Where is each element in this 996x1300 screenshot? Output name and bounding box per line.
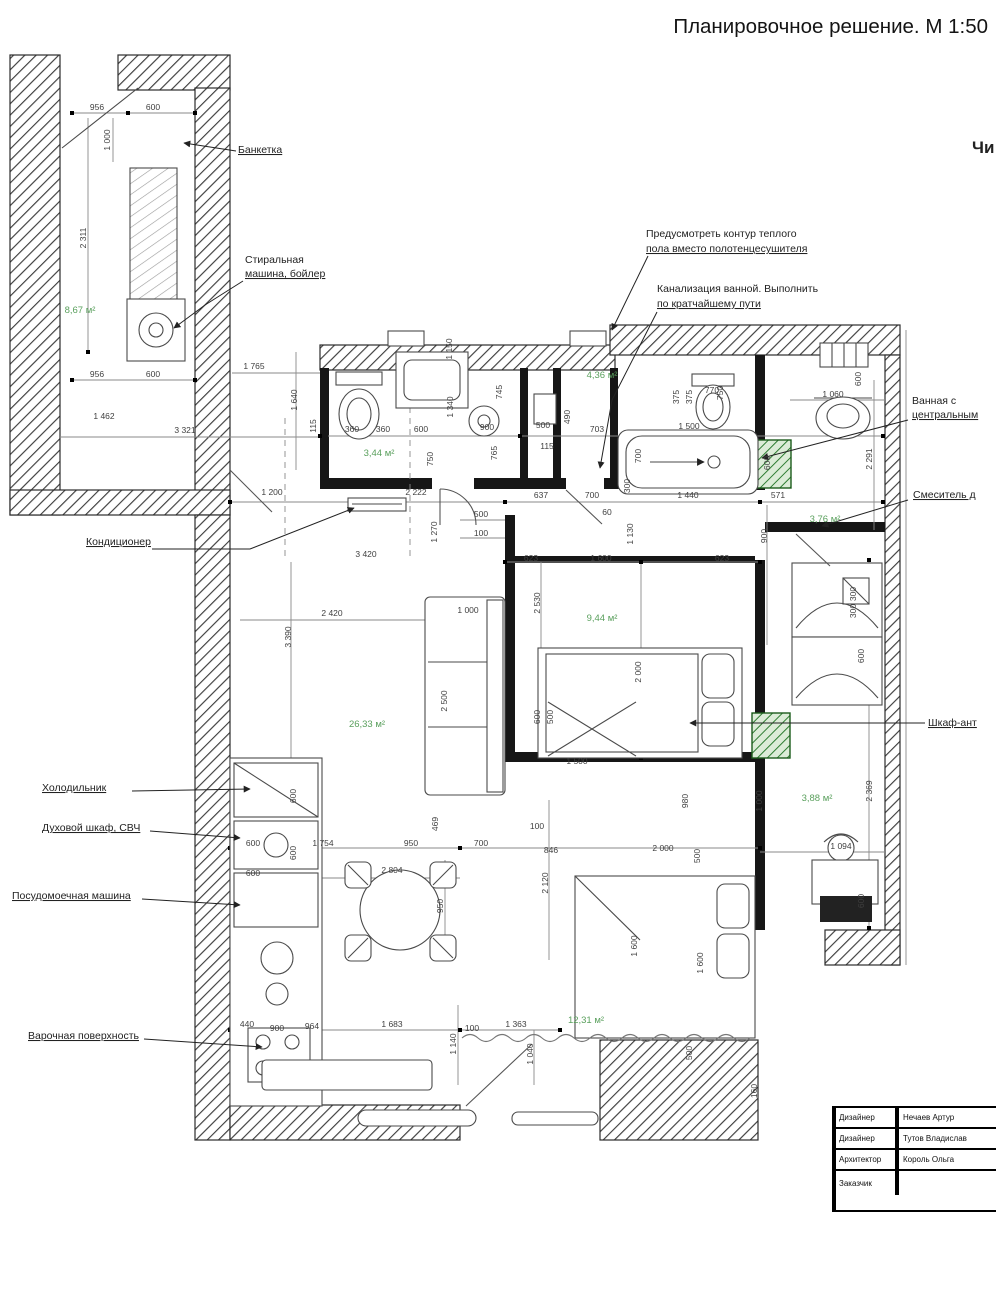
dimension-label: 700: [585, 490, 599, 500]
dimension-label: 60: [602, 507, 612, 517]
dimension-label: 2 222: [405, 487, 427, 497]
dimension-label: 300: [622, 479, 632, 493]
room-area-label: 3,88 м²: [802, 793, 833, 804]
dimension-label: 100: [465, 1023, 479, 1033]
radiator: [820, 343, 868, 367]
dimension-label: 1 150: [444, 338, 454, 360]
dimension-label: 500: [692, 849, 702, 863]
person-name: Тутов Владислав: [899, 1134, 996, 1143]
dimension-label: 2 530: [532, 592, 542, 614]
wall-left-outer: [10, 55, 60, 515]
dimension-label: 600: [246, 868, 260, 878]
dimension-label: 1 040: [525, 1043, 535, 1065]
room-area-label: 4,36 м²: [587, 370, 618, 381]
room-area-label: 3,44 м²: [364, 448, 395, 459]
dimension-label: 1 600: [695, 952, 705, 974]
dimension-label: 600: [288, 789, 298, 803]
entry-door-swing: [62, 88, 138, 148]
callout-bath-central-line1: Ванная с: [912, 395, 956, 407]
floor-plan-drawing: Планировочное решение. М 1:50 Чи: [0, 0, 996, 1300]
duct-shaft: [755, 440, 791, 488]
role-label: Заказчик: [836, 1171, 899, 1195]
dimension-label: 2 804: [381, 865, 403, 875]
clipped-edge-text: Чи: [972, 138, 994, 157]
dimension-label: 2 120: [540, 872, 550, 894]
dimension-label: 1 000: [102, 129, 112, 151]
dimension-label: 115: [308, 419, 318, 433]
title-block: Дизайнер Нечаев Артур Дизайнер Тутов Вла…: [832, 1106, 996, 1212]
room-area-label: 3,76 м²: [810, 514, 841, 525]
role-label: Дизайнер: [836, 1108, 899, 1127]
callout-washer-line1: Стиральная: [245, 254, 304, 266]
dimension-label: 1 363: [505, 1019, 527, 1029]
dimension-label: 1 683: [381, 1019, 403, 1029]
dimension-label: 115: [540, 441, 554, 451]
dimension-label: 500: [536, 420, 550, 430]
callout-bench: Банкетка: [238, 144, 282, 156]
wall-left-lower: [195, 515, 230, 1140]
dimension-label: 2 000: [652, 843, 674, 853]
dimension-label: 956: [90, 102, 104, 112]
dimension-label: 1 340: [445, 396, 455, 418]
dimension-label: 571: [771, 490, 785, 500]
dimension-label: 600: [288, 846, 298, 860]
room-area-label: 8,67 м²: [65, 305, 96, 316]
dimension-label: 375: [671, 390, 681, 404]
dimension-label: 500: [684, 1046, 694, 1060]
dimension-label: 2 311: [78, 227, 88, 248]
washing-machine: [127, 299, 185, 361]
callout-wardrobe: Шкаф-ант: [928, 717, 977, 729]
dimension-label: 700: [633, 449, 643, 463]
dimension-label: 900: [480, 422, 494, 432]
title-block-row: Заказчик: [836, 1171, 996, 1195]
balcony-cabinet: [262, 1060, 432, 1090]
page-title: Планировочное решение. М 1:50: [673, 15, 988, 38]
dimension-label: 2 369: [864, 780, 874, 802]
dimension-label: 950: [404, 838, 418, 848]
dimension-label: 750: [425, 452, 435, 466]
wall-top-corridor: [118, 55, 230, 90]
room-area-label: 26,33 м²: [349, 719, 385, 730]
dimension-label: 1 060: [822, 389, 844, 399]
wall-bottom-right-block: [600, 1040, 758, 1140]
dimension-label: 846: [544, 845, 558, 855]
dimension-label: 1 462: [93, 411, 115, 421]
dimension-label: 900: [270, 1023, 284, 1033]
dimension-label: 3 321: [174, 425, 196, 435]
dimension-label: 360: [376, 424, 390, 434]
title-block-row: Дизайнер Тутов Владислав: [836, 1129, 996, 1150]
callout-dishwasher: Посудомоечная машина: [12, 890, 131, 902]
callout-bath-central-line2: центральным: [912, 409, 978, 421]
dimension-label: 1 754: [312, 838, 334, 848]
dimension-label: 2 291: [864, 448, 874, 470]
dimension-label: 1 640: [289, 389, 299, 411]
dimension-label: 703: [590, 424, 604, 434]
callout-washer-line2: машина, бойлер: [245, 268, 326, 280]
dimension-label: 1 094: [830, 841, 852, 851]
dimension-label: 1 140: [448, 1033, 458, 1055]
wall-right-bottom: [825, 930, 900, 965]
dimension-label: 700: [474, 838, 488, 848]
dimension-label: 1 270: [429, 521, 439, 543]
room-area-label: 9,44 м²: [587, 613, 618, 624]
note-drain-line2: по кратчайшему пути: [657, 298, 761, 310]
title-block-row: Архитектор Король Ольга: [836, 1150, 996, 1171]
dimension-label: 600: [856, 649, 866, 663]
callout-oven: Духовой шкаф, СВЧ: [42, 822, 140, 834]
dimension-label: 100: [530, 821, 544, 831]
dimension-label: 964: [305, 1021, 319, 1031]
dimension-label: 360: [345, 424, 359, 434]
dimension-label: 1 200: [261, 487, 283, 497]
dimension-label: 745: [494, 385, 504, 399]
title-block-row: Дизайнер Нечаев Артур: [836, 1108, 996, 1129]
dimension-label: 956: [90, 369, 104, 379]
callout-mixer: Смеситель д: [913, 489, 976, 501]
dimension-label: 623: [715, 553, 729, 563]
wall-corridor-right: [195, 88, 230, 515]
dimension-label: 600: [246, 838, 260, 848]
window-threshold: [512, 1112, 598, 1125]
vent-box: [570, 331, 606, 346]
dimension-label: 950: [435, 899, 445, 913]
wall-right-outer: [885, 355, 900, 965]
dimension-label: 469: [430, 817, 440, 831]
dimension-label: 600: [146, 102, 160, 112]
wall-corridor-bottom: [10, 490, 230, 515]
dimension-label: 160: [749, 1084, 759, 1098]
dimension-label: 1 500: [678, 421, 700, 431]
dimension-label: 2 420: [321, 608, 343, 618]
dimension-label: 1 500: [566, 756, 588, 766]
dimension-label: 623: [524, 553, 538, 563]
bed-2: [575, 876, 755, 1038]
role-label: Дизайнер: [836, 1129, 899, 1148]
callout-fridge: Холодильник: [42, 782, 107, 794]
dimension-label: 3 420: [355, 549, 377, 559]
window-threshold: [358, 1110, 476, 1126]
person-name: Король Ольга: [899, 1155, 996, 1164]
dimension-label: 1 440: [677, 490, 699, 500]
dimension-label: 600: [853, 372, 863, 386]
dimension-label: 765: [489, 446, 499, 460]
dimension-label: 490: [562, 410, 572, 424]
wardrobe: [792, 563, 882, 705]
person-name: Нечаев Артур: [899, 1113, 996, 1122]
dimension-label: 600: [762, 456, 772, 470]
role-label: Архитектор: [836, 1150, 899, 1169]
note-drain-line1: Канализация ванной. Выполнить: [657, 283, 819, 295]
dimension-label: 500: [545, 710, 555, 724]
dimension-label: 637: [534, 490, 548, 500]
dimension-label: 2 000: [633, 661, 643, 683]
dimension-label: 600: [856, 894, 866, 908]
vanity-sink: [396, 352, 468, 408]
floor-plan-sheet: Планировочное решение. М 1:50 Чи: [0, 0, 996, 1300]
dimension-label: 3 390: [283, 626, 293, 648]
dimension-label: 2 500: [439, 690, 449, 712]
dimension-label: 980: [680, 794, 690, 808]
callout-ac: Кондиционер: [86, 536, 151, 548]
vent-box: [388, 331, 424, 346]
dimension-label: 900: [759, 529, 769, 543]
dimension-label: 375: [684, 390, 694, 404]
dimension-label: 1 130: [625, 523, 635, 545]
note-heated-floor-line2: пола вместо полотенцесушителя: [646, 243, 807, 255]
kitchen-run: [230, 758, 322, 1106]
duct-shaft: [752, 713, 790, 758]
washbasin: [814, 397, 872, 439]
dimension-label: 1 600: [629, 935, 639, 957]
dimension-label: 1 600: [590, 553, 612, 563]
dimension-label: 1 000: [754, 790, 764, 812]
dimension-label: 750: [715, 386, 725, 400]
dimension-label: 600: [146, 369, 160, 379]
dimension-label: 440: [240, 1019, 254, 1029]
dimension-label: 1 765: [243, 361, 265, 371]
dimension-label: 500: [474, 509, 488, 519]
dimension-label: 300: [848, 587, 858, 601]
dimension-label: 300: [848, 604, 858, 618]
sofa: [425, 597, 505, 795]
dimension-label: 600: [414, 424, 428, 434]
dimension-label: 1 000: [457, 605, 479, 615]
room-area-label: 12,31 м²: [568, 1015, 604, 1026]
note-heated-floor-line1: Предусмотреть контур теплого: [646, 228, 797, 240]
dimension-label: 100: [474, 528, 488, 538]
callout-hob: Варочная поверхность: [28, 1030, 139, 1042]
dimension-label: 600: [532, 710, 542, 724]
ac-unit: [348, 498, 406, 511]
